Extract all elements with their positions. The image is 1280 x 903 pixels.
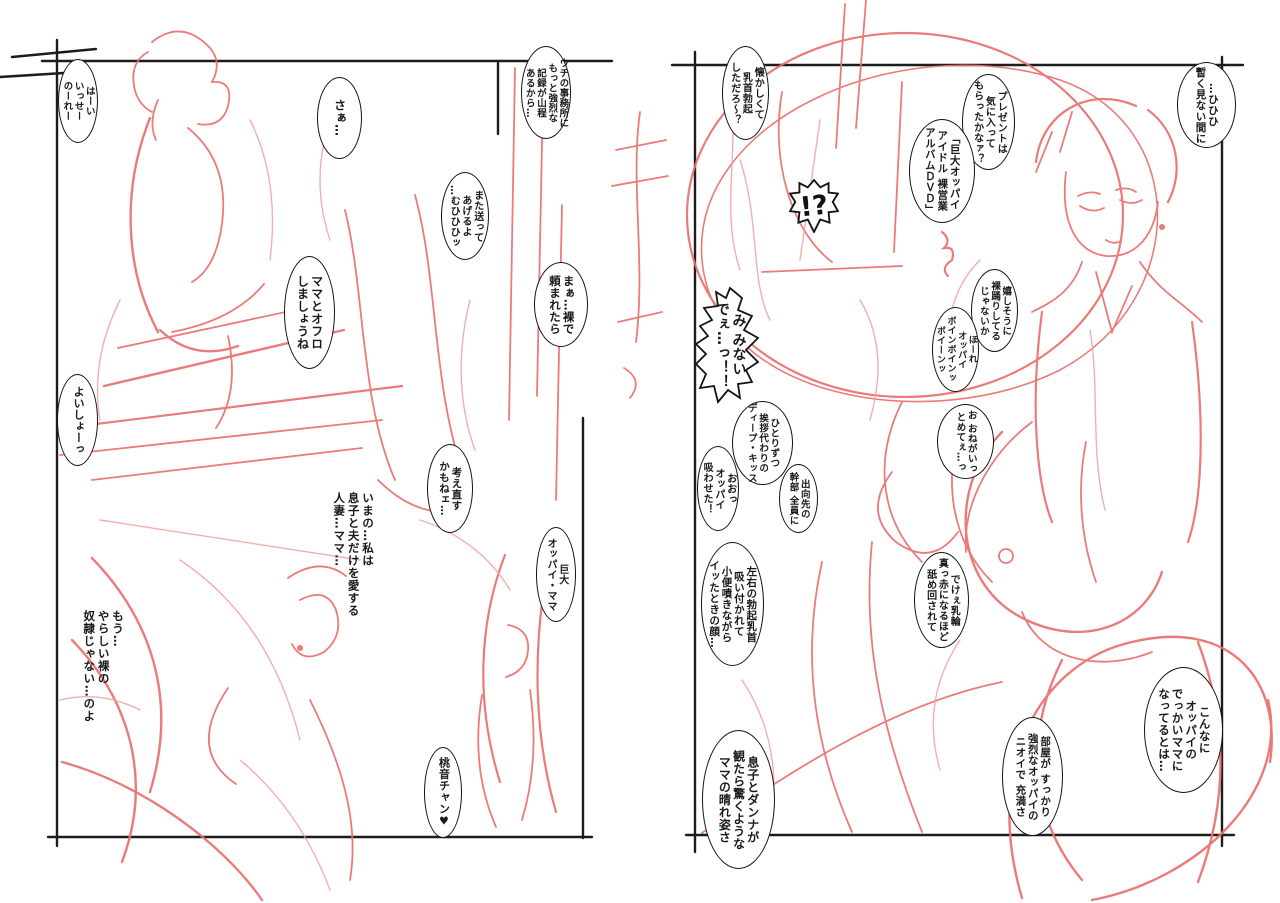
speech-text: プレゼントは 気に入って もらったかなァ？ — [971, 80, 1006, 164]
speech-bubble-momone: 桃音チャン♥ — [424, 747, 462, 838]
speech-bubble-onegai: お おねがいっ とめてぇ…っ — [937, 404, 994, 479]
speech-bubble-kangae: 考え直す かもねェ… — [427, 444, 473, 533]
speech-bubble-ofuro: ママとオフロ しましょうね — [284, 256, 335, 369]
speech-bubble-uchi: ウチの事務所に もっと強烈な 記録が山程 あるから… — [521, 46, 571, 139]
speech-bubble-natsukashi: 懐かしくて 乳首勃起 しただろ～？ — [722, 46, 769, 140]
speech-bubble-kyodai: 巨大 オッパイ・ママ — [536, 527, 576, 622]
speech-bubble-sayuu: 左右の勃起乳首 吸い付かれて 小便噴きながら イッたときの顔… — [701, 542, 764, 666]
speech-text: 嬉しそうに 裸踊りしてる じゃないか — [978, 281, 1012, 341]
speech-text: 「巨大オッパイ アイドル 裸営業 アルバムＤＶＤ」 — [923, 127, 960, 215]
speech-text: はーい いっせー のーれー — [61, 81, 95, 121]
speech-text: 考え直す かもねェ… — [438, 461, 463, 516]
speech-text: ウチの事務所に もっと強烈な 記録が山程 あるから… — [524, 58, 569, 128]
speech-text: こんなに オッパイの でっかいママに なってるとは… — [1156, 688, 1210, 772]
speech-text: また送って あげるよ …むひひひッ — [447, 185, 482, 248]
shout-bubble-minaide: み みない でぇ…っ！！ — [694, 286, 766, 404]
speech-bubble-musuko: 息子とダンナが 観たら驚くような ママの晴れ姿さ — [702, 730, 775, 869]
speech-text: おおっ オッパイ 吸わせた！ — [700, 462, 735, 515]
speech-bubble-hitorizutsu: ひとりずつ 挨拶代わりの ディープ・キッス — [732, 401, 793, 485]
speech-bubble-konnani: こんなに オッパイの でっかいママに なってるとは… — [1144, 667, 1223, 793]
monologue-imano: いまの…私は 息子と夫だけを愛する 人妻…ママ… — [315, 492, 375, 650]
speech-text: ほーれ オッパイ ボインボインッ ボイーンッ — [934, 316, 976, 383]
speech-text: まぁ…裸で 頼まれたら — [547, 275, 574, 335]
speech-text: 息子とダンナが 観たら驚くような ママの晴れ姿さ — [717, 750, 759, 850]
speech-bubble-maa: まぁ…裸で 頼まれたら — [534, 262, 588, 347]
manga-spread: はーい いっせー のーれー さぁ… ウチの事務所に もっと強烈な 記録が山程 あ… — [0, 0, 1280, 903]
speech-bubble-suwaseta: おおっ オッパイ 吸わせた！ — [697, 446, 739, 531]
shout-text: !? — [798, 189, 829, 223]
speech-text: ひとりずつ 挨拶代わりの ディープ・キッス — [746, 403, 780, 483]
shout-text: み みない でぇ…っ！！ — [713, 302, 746, 389]
speech-text: …ひひひ 暫く見ない間に — [1194, 67, 1219, 144]
speech-text: 桃音チャン♥ — [437, 757, 450, 828]
speech-text: 懐かしくて 乳首勃起 しただろ～？ — [728, 62, 763, 125]
shout-bubble-bang: !? — [789, 179, 839, 233]
speech-text: さぁ… — [332, 99, 346, 137]
speech-bubble-hihihi: …ひひひ 暫く見ない間に — [1177, 62, 1236, 148]
speech-bubble-haai: はーい いっせー のーれー — [58, 59, 98, 143]
speech-text: ママとオフロ しましょうね — [295, 275, 323, 350]
speech-text: よいしょーっ — [71, 386, 84, 455]
speech-bubble-saa: さぁ… — [317, 77, 362, 159]
speech-text: 巨大 オッパイ・ママ — [544, 538, 568, 612]
sketch-left — [60, 31, 562, 900]
panel-borders — [0, 40, 1243, 852]
speech-text: 左右の勃起乳首 吸い付かれて 小便噴きながら イッたときの顔… — [708, 560, 758, 648]
speech-text: でけぇ乳輪 真っ赤になるほど 舐め回されて — [924, 558, 959, 642]
speech-bubble-hore: ほーれ オッパイ ボインボインッ ボイーンッ — [932, 307, 979, 392]
monologue-mou: もう… やらしい裸の 奴隷じゃない…のよ — [67, 610, 125, 736]
speech-bubble-shukko: 出向先の 幹部 全員に — [779, 464, 818, 533]
speech-text: お おねがいっ とめてぇ…っ — [954, 410, 976, 474]
sketch-artwork — [0, 0, 1280, 903]
speech-bubble-yoisho: よいしょーっ — [57, 374, 98, 466]
speech-bubble-dekee: でけぇ乳輪 真っ赤になるほど 舐め回されて — [914, 552, 969, 648]
speech-bubble-dvd: 「巨大オッパイ アイドル 裸営業 アルバムＤＶＤ」 — [909, 119, 975, 223]
speech-bubble-heya: 部屋が すっかり 強烈なオッパイの ニオイで 充満さ — [1002, 717, 1063, 836]
speech-bubble-mata: また送って あげるよ …むひひひッ — [441, 172, 489, 260]
speech-text: 出向先の 幹部 全員に — [787, 472, 809, 526]
speech-text: 部屋が すっかり 強烈なオッパイの ニオイで 充満さ — [1014, 733, 1051, 821]
